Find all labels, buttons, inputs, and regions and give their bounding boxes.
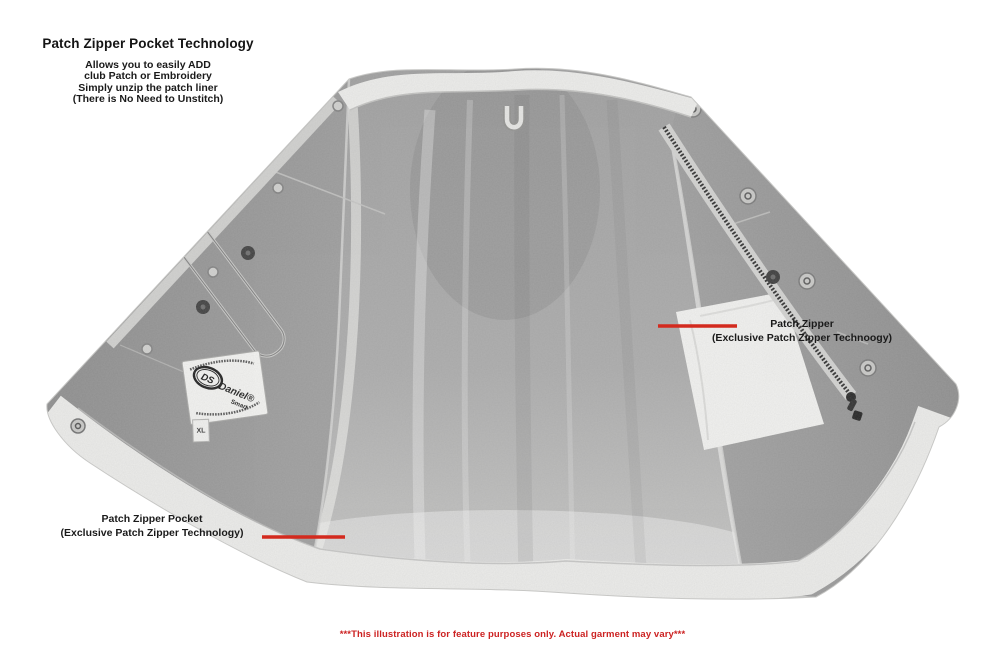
header: Patch Zipper Pocket Technology Allows yo… [20,36,276,106]
annotation-patch-zipper-pocket: Patch Zipper Pocket (Exclusive Patch Zip… [28,513,276,540]
annotation-patch-zipper-pocket-title: Patch Zipper Pocket [28,513,276,527]
disclaimer: ***This illustration is for feature purp… [25,629,1000,640]
product-illustration: DS Daniel® Smart XL Patch Zipper Pocket … [0,0,1000,667]
feature-description-line: (There is No Need to Unstitch) [20,94,276,105]
annotation-patch-zipper-pocket-subtitle: (Exclusive Patch Zipper Technology) [28,527,276,541]
annotation-patch-zipper: Patch Zipper (Exclusive Patch Zipper Tec… [656,318,948,345]
feature-description: Allows you to easily ADD club Patch or E… [20,60,276,106]
page-title: Patch Zipper Pocket Technology [20,36,276,51]
annotation-patch-zipper-title: Patch Zipper [656,318,948,332]
annotation-patch-zipper-subtitle: (Exclusive Patch Zipper Technoogy) [656,332,948,346]
